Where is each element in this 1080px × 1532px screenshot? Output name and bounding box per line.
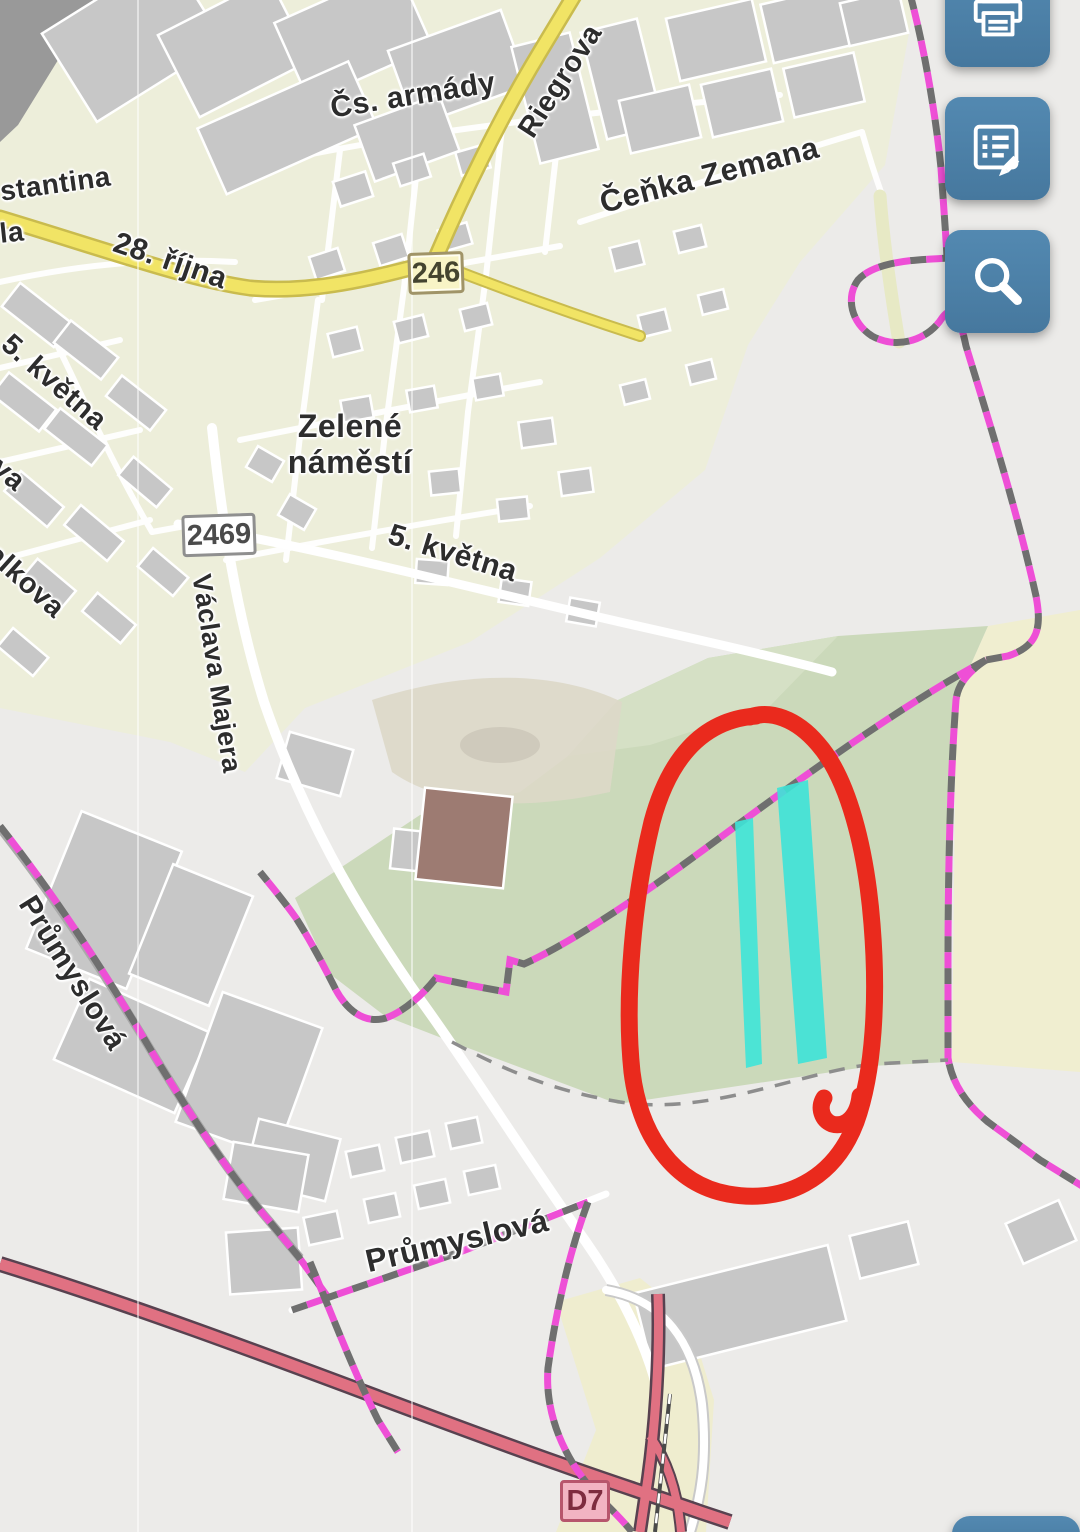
map-canvas: .bnd-g{fill:none;stroke:#6f6f6f;stroke-w… xyxy=(0,0,1080,1532)
map-view[interactable]: .bnd-g{fill:none;stroke:#6f6f6f;stroke-w… xyxy=(0,0,1080,1532)
place-label-line1: Zelené xyxy=(268,408,432,444)
printer-icon xyxy=(967,0,1029,47)
street-label-la-partial: la xyxy=(0,215,26,249)
search-icon xyxy=(967,251,1029,313)
search-button[interactable] xyxy=(945,230,1050,333)
partial-bottom-button[interactable] xyxy=(952,1516,1080,1532)
print-button[interactable] xyxy=(945,0,1050,67)
road-badge-246: 246 xyxy=(407,251,464,295)
place-label-line2: náměstí xyxy=(268,444,432,480)
notes-edit-button[interactable] xyxy=(945,97,1050,200)
road-badge-2469: 2469 xyxy=(181,513,256,558)
road-badge-d7: D7 xyxy=(560,1480,610,1522)
place-label-zelene-namesti: Zelené náměstí xyxy=(268,408,432,480)
notes-edit-icon xyxy=(967,118,1029,180)
